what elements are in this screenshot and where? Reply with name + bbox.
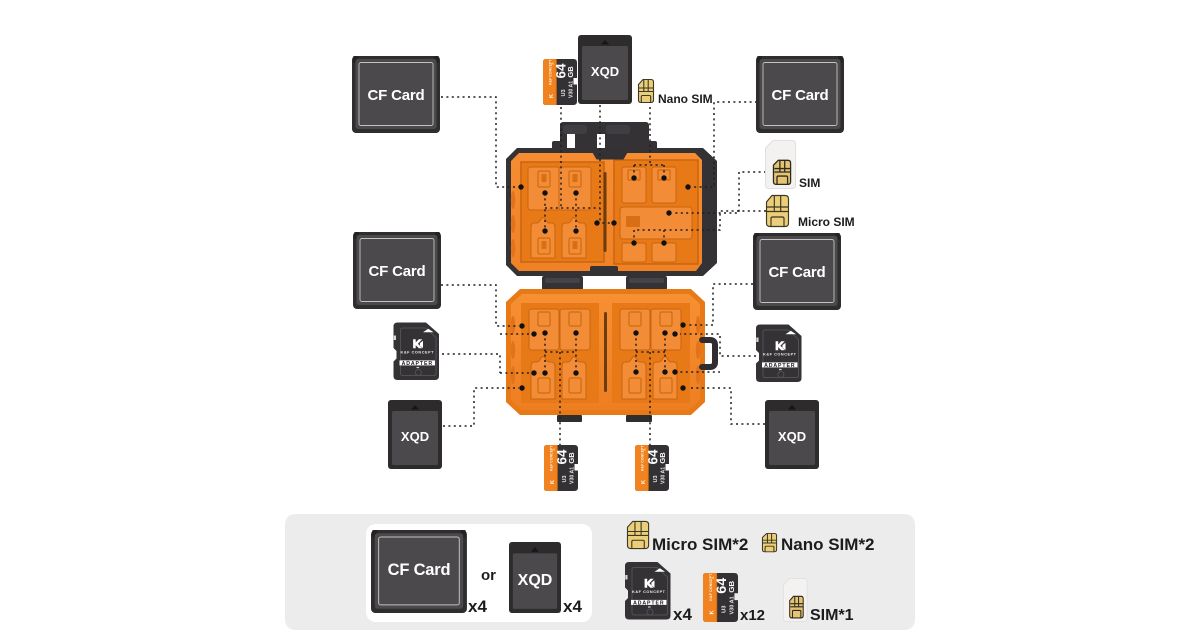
svg-text:XQD: XQD xyxy=(591,64,619,79)
svg-text:XQD: XQD xyxy=(401,429,429,444)
svg-text:Micro SIM: Micro SIM xyxy=(798,215,855,229)
svg-text:SIM: SIM xyxy=(799,176,820,190)
svg-text:CF Card: CF Card xyxy=(769,264,826,281)
svg-text:x4: x4 xyxy=(468,597,487,616)
svg-text:XQD: XQD xyxy=(518,572,553,589)
svg-text:x12: x12 xyxy=(740,607,765,624)
svg-text:x4: x4 xyxy=(673,605,692,624)
svg-text:CF Card: CF Card xyxy=(772,87,829,104)
svg-text:Micro SIM*2: Micro SIM*2 xyxy=(652,535,748,554)
svg-text:CF Card: CF Card xyxy=(369,263,426,280)
svg-text:Nano SIM: Nano SIM xyxy=(658,92,713,106)
svg-text:CF Card: CF Card xyxy=(388,561,451,579)
svg-text:CF Card: CF Card xyxy=(368,87,425,104)
svg-text:Nano SIM*2: Nano SIM*2 xyxy=(781,535,875,554)
svg-text:or: or xyxy=(481,567,496,584)
svg-text:x4: x4 xyxy=(563,597,582,616)
svg-text:XQD: XQD xyxy=(778,429,806,444)
svg-text:SIM*1: SIM*1 xyxy=(810,607,854,624)
